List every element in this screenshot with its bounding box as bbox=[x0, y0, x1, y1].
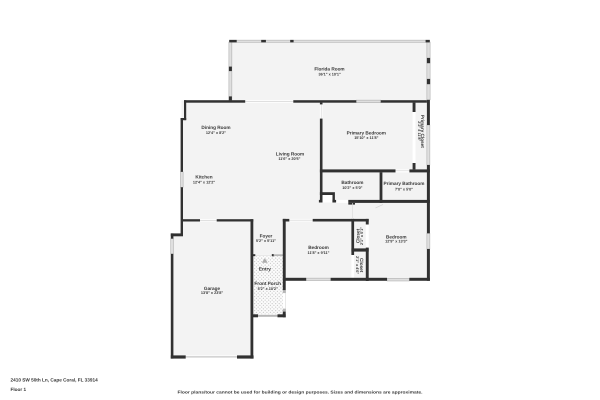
svg-text:15'10" x 11'8": 15'10" x 11'8" bbox=[354, 136, 378, 140]
svg-text:Florida Room: Florida Room bbox=[314, 67, 344, 72]
svg-text:12'4" x 8'2": 12'4" x 8'2" bbox=[206, 131, 226, 135]
svg-text:5'2" x 10'2": 5'2" x 10'2" bbox=[258, 287, 278, 291]
svg-text:5'2" x 5'11": 5'2" x 5'11" bbox=[256, 239, 276, 243]
svg-text:12'4" x 12'2": 12'4" x 12'2" bbox=[193, 180, 215, 184]
svg-text:12'9" x 13'3": 12'9" x 13'3" bbox=[385, 239, 407, 243]
svg-text:Dining Room: Dining Room bbox=[201, 125, 230, 130]
svg-text:Bedroom: Bedroom bbox=[308, 245, 329, 250]
svg-text:Primary Bedroom: Primary Bedroom bbox=[347, 131, 386, 136]
svg-text:Living Room: Living Room bbox=[276, 151, 304, 156]
svg-text:2'1" x 4'6": 2'1" x 4'6" bbox=[355, 256, 359, 274]
svg-text:Foyer: Foyer bbox=[260, 233, 273, 238]
svg-text:36'1" x 10'1": 36'1" x 10'1" bbox=[319, 72, 341, 76]
svg-text:Bathroom: Bathroom bbox=[341, 180, 363, 185]
svg-text:Front Porch: Front Porch bbox=[254, 281, 281, 286]
svg-text:10'2" x 5'0": 10'2" x 5'0" bbox=[342, 186, 362, 190]
svg-text:Kitchen: Kitchen bbox=[195, 174, 212, 179]
svg-text:2'1" x 5'1": 2'1" x 5'1" bbox=[360, 227, 364, 245]
svg-text:2410 SW 50th Ln, Cape Coral, F: 2410 SW 50th Ln, Cape Coral, FL 33914 bbox=[11, 378, 99, 383]
svg-text:Primary Bathroom: Primary Bathroom bbox=[384, 181, 425, 186]
svg-text:Floor 1: Floor 1 bbox=[11, 387, 27, 392]
svg-text:11'8" x 9'11": 11'8" x 9'11" bbox=[308, 251, 330, 255]
svg-text:Floor plans/tour cannot be use: Floor plans/tour cannot be used for buil… bbox=[178, 389, 423, 394]
svg-text:11'6" x 20'5": 11'6" x 20'5" bbox=[278, 157, 300, 161]
svg-text:13'8" x 23'8": 13'8" x 23'8" bbox=[201, 291, 223, 295]
svg-text:2'2" x 11'8": 2'2" x 11'8" bbox=[417, 121, 421, 141]
svg-text:Entry: Entry bbox=[259, 266, 271, 271]
svg-text:7'0" x 5'0": 7'0" x 5'0" bbox=[395, 187, 413, 191]
